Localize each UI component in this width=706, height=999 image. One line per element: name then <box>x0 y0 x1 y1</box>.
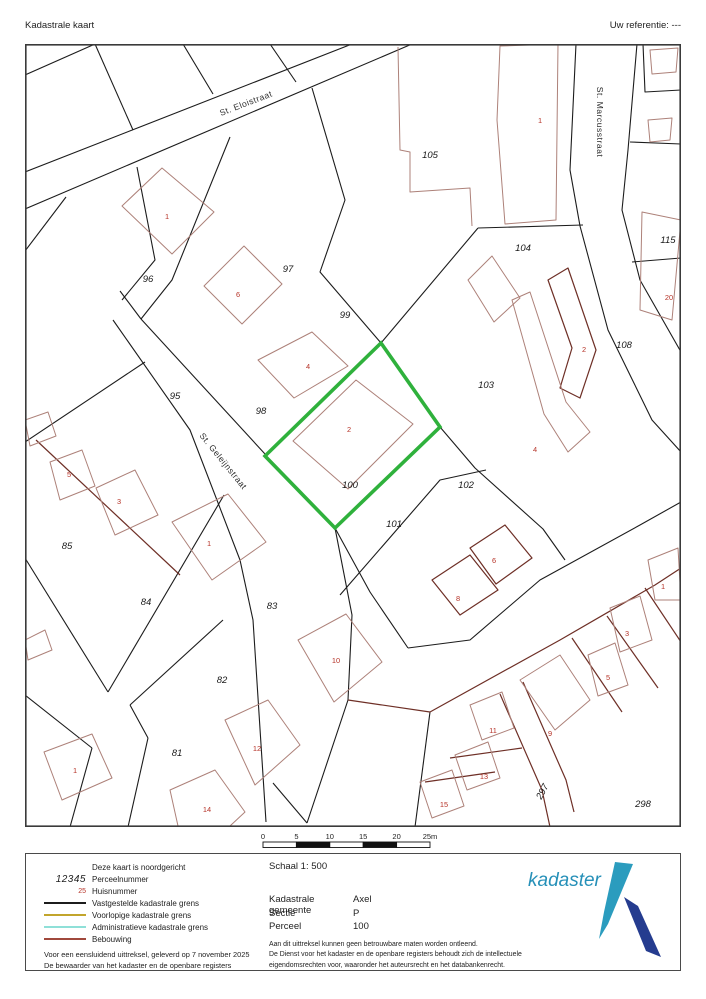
house-number-label: 13 <box>480 772 488 781</box>
legend-row: Voorlopige kadastrale grens <box>44 909 208 921</box>
legend-line-sample <box>44 938 86 940</box>
info-value: P <box>353 908 359 922</box>
map-info: Schaal 1: 500 Kadastrale gemeenteAxelSec… <box>269 861 371 935</box>
parcel-number-label: 97 <box>283 264 294 275</box>
parcel-info-row: SectieP <box>269 908 371 922</box>
legend-line-sample <box>44 914 86 916</box>
house-number-label: 15 <box>440 800 448 809</box>
legend-label: Deze kaart is noordgericht <box>92 863 185 872</box>
kadaster-logo: kadaster <box>522 860 682 965</box>
info-label: Sectie <box>269 908 353 922</box>
house-number-label: 6 <box>492 556 496 565</box>
disclaimer-line: eigendomsrechten voor, waaronder het aut… <box>269 961 522 971</box>
house-number-label: 20 <box>665 293 673 302</box>
scale-tick-label: 5 <box>294 832 298 841</box>
parcel-number-label: 101 <box>386 519 402 530</box>
legend-sample: 25 <box>44 888 92 895</box>
house-number-label: 8 <box>456 594 460 603</box>
legend-label: Bebouwing <box>92 935 132 944</box>
parcel-number-label: 102 <box>458 480 475 491</box>
legend-label: Administratieve kadastrale grens <box>92 923 208 932</box>
legend-sample <box>44 938 92 940</box>
parcel-number-label: 99 <box>340 310 351 321</box>
house-number-label: 2 <box>582 345 586 354</box>
parcel-number-label: 83 <box>267 601 278 612</box>
house-number-label: 1 <box>538 116 542 125</box>
parcel-number-label: 104 <box>515 243 531 254</box>
scale-tick-label: 15 <box>359 832 367 841</box>
parcel-number-label: 115 <box>660 235 676 246</box>
info-label: Perceel <box>269 921 353 935</box>
kadastrale-kaart-page: { "header": { "left": "Kadastrale kaart"… <box>0 0 706 999</box>
parcel-number-label: 298 <box>634 799 652 810</box>
legend-line-sample <box>44 926 86 928</box>
disclaimer-text: Aan dit uittreksel kunnen geen betrouwba… <box>269 940 522 971</box>
map-legend: Deze kaart is noordgericht12345Perceelnu… <box>44 861 208 945</box>
kadaster-logo-mark-navy <box>624 897 661 957</box>
house-number-label: 12 <box>253 744 261 753</box>
house-number-label: 3 <box>625 629 629 638</box>
map-background <box>25 44 681 827</box>
legend-row: Vastgestelde kadastrale grens <box>44 897 208 909</box>
legend-sample: 12345 <box>44 874 92 885</box>
house-number-label: 3 <box>117 497 121 506</box>
house-number-label: 1 <box>207 539 211 548</box>
scale-tick-label: 0 <box>261 832 265 841</box>
extract-statement-line: De bewaarder van het kadaster en de open… <box>44 961 249 972</box>
scale-tick-label: 25m <box>423 832 438 841</box>
legend-housenumber-sample: 25 <box>78 888 86 895</box>
legend-line-sample <box>44 902 86 904</box>
legend-label: Huisnummer <box>92 887 137 896</box>
scale-bar-segments <box>263 842 430 848</box>
house-number-label: 5 <box>606 673 610 682</box>
parcel-number-label: 95 <box>170 391 181 402</box>
legend-sample <box>44 926 92 928</box>
house-number-label: 1 <box>73 766 77 775</box>
parcel-number-label: 98 <box>256 406 267 417</box>
legend-sample <box>44 914 92 916</box>
house-number-label: 1 <box>165 212 169 221</box>
parcel-number-label: 96 <box>143 274 154 285</box>
info-panel: Deze kaart is noordgericht12345Perceelnu… <box>25 853 681 971</box>
scale-tick-label: 20 <box>392 832 400 841</box>
cadastral-map: St. EloistraatSt. MarcusstraatSt. Geleij… <box>25 44 681 827</box>
parcel-info-rows: Kadastrale gemeenteAxelSectiePPerceel100 <box>269 894 371 935</box>
parcel-info-row: Kadastrale gemeenteAxel <box>269 894 371 908</box>
parcel-number-label: 85 <box>62 541 73 552</box>
house-number-label: 4 <box>533 445 537 454</box>
house-number-label: 10 <box>332 656 340 665</box>
house-number-label: 1 <box>661 582 665 591</box>
parcel-number-label: 103 <box>478 380 495 391</box>
house-number-label: 6 <box>236 290 240 299</box>
info-value: Axel <box>353 894 371 908</box>
reference-label: Uw referentie: --- <box>610 20 681 31</box>
page-title: Kadastrale kaart <box>25 20 94 31</box>
legend-label: Vastgestelde kadastrale grens <box>92 899 199 908</box>
house-number-label: 5 <box>67 470 71 479</box>
legend-row: Deze kaart is noordgericht <box>44 861 208 873</box>
parcel-number-label: 84 <box>141 597 152 608</box>
legend-sample <box>44 902 92 904</box>
scale-bar-labels: 0510152025m <box>261 832 437 841</box>
kadaster-logo-text: kadaster <box>528 870 602 891</box>
disclaimer-line: Aan dit uittreksel kunnen geen betrouwba… <box>269 940 522 950</box>
house-number-label: 11 <box>489 726 497 735</box>
house-number-label: 14 <box>203 805 211 814</box>
legend-label: Perceelnummer <box>92 875 148 884</box>
parcel-number-label: 100 <box>342 480 359 491</box>
scale-bar: 0510152025m <box>255 831 455 851</box>
info-value: 100 <box>353 921 369 935</box>
parcel-number-label: 105 <box>422 150 439 161</box>
map-canvas: St. EloistraatSt. MarcusstraatSt. Geleij… <box>25 44 681 827</box>
legend-row: 12345Perceelnummer <box>44 873 208 885</box>
info-label: Kadastrale gemeente <box>269 894 353 908</box>
parcel-number-label: 81 <box>172 748 183 759</box>
scale-text: Schaal 1: 500 <box>269 861 371 872</box>
extract-statement: Voor een eensluidend uittreksel, gelever… <box>44 950 249 971</box>
street-name-label: St. Marcusstraat <box>595 87 605 158</box>
legend-label: Voorlopige kadastrale grens <box>92 911 191 920</box>
legend-row: 25Huisnummer <box>44 885 208 897</box>
legend-parcel-sample: 12345 <box>56 874 86 885</box>
parcel-number-label: 82 <box>217 675 228 686</box>
disclaimer-line: De Dienst voor het kadaster en de openba… <box>269 950 522 960</box>
parcel-number-label: 108 <box>616 340 633 351</box>
legend-row: Administratieve kadastrale grens <box>44 921 208 933</box>
house-number-label: 9 <box>548 729 552 738</box>
legend-row: Bebouwing <box>44 933 208 945</box>
scale-tick-label: 10 <box>326 832 334 841</box>
parcel-info-row: Perceel100 <box>269 921 371 935</box>
house-number-label: 4 <box>306 362 310 371</box>
extract-statement-line: Voor een eensluidend uittreksel, gelever… <box>44 950 249 961</box>
house-number-label: 2 <box>347 425 351 434</box>
